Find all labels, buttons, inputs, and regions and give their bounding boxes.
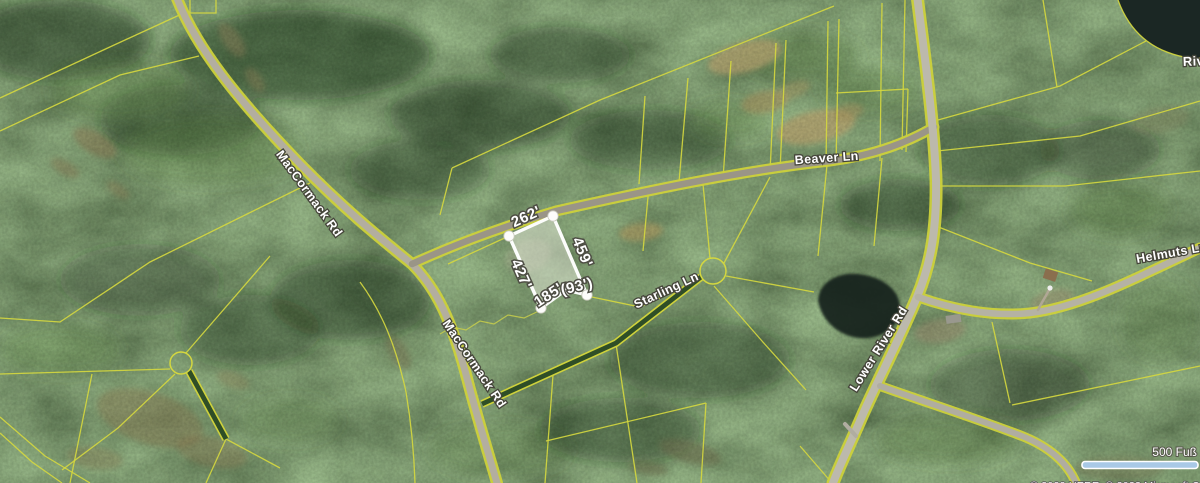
scale-label: 500 Fuß bbox=[1152, 445, 1197, 459]
house-dot bbox=[1047, 285, 1052, 290]
vertex-handle[interactable] bbox=[548, 211, 558, 221]
vertex-handle[interactable] bbox=[504, 231, 514, 241]
map-canvas[interactable]: MacCormack Rd Beaver Ln Starling Ln MacC… bbox=[0, 0, 1200, 483]
forest-texture bbox=[0, 0, 1200, 483]
river-label: Riv bbox=[1183, 53, 1200, 69]
aerial-map-svg: MacCormack Rd Beaver Ln Starling Ln MacC… bbox=[0, 0, 1200, 483]
scale-bar bbox=[1082, 462, 1198, 469]
